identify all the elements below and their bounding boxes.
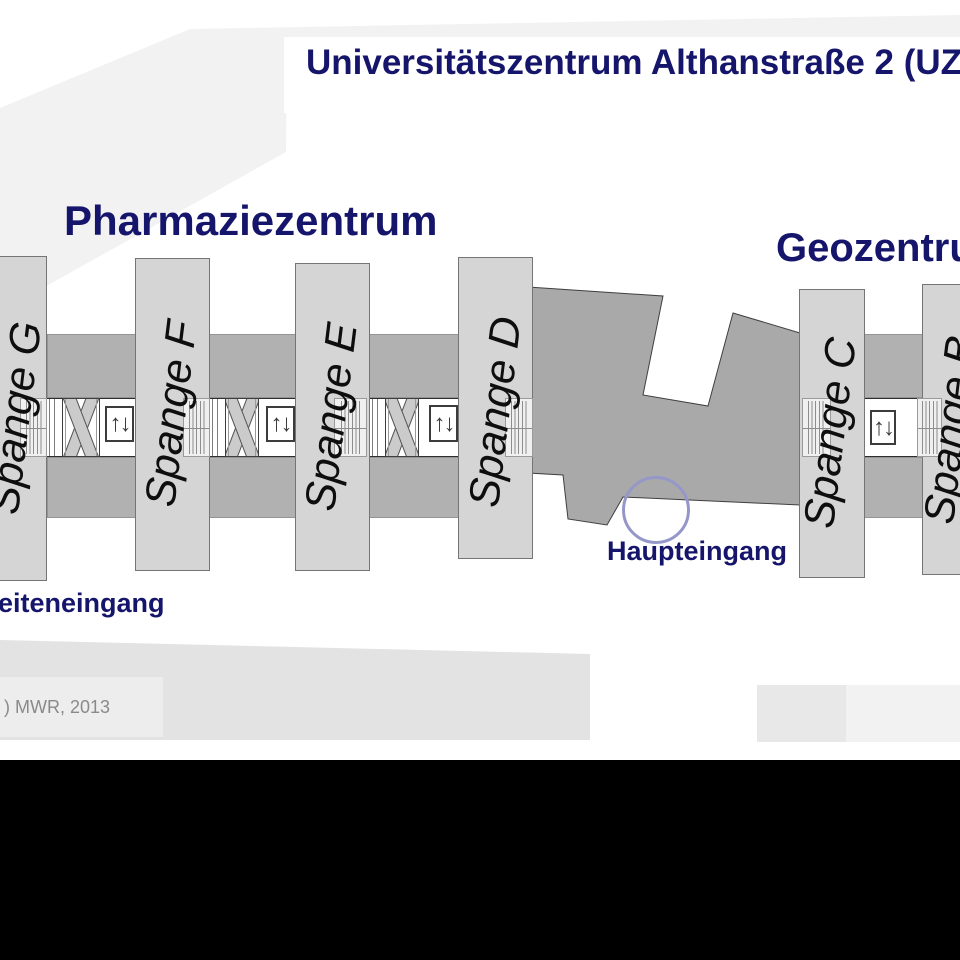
strip-lines [372, 399, 382, 456]
bottom-right-pad [846, 685, 960, 742]
corridor-band [209, 457, 297, 518]
elevator-icon: ↑↓ [429, 405, 458, 442]
elevator-arrows: ↑↓ [873, 416, 893, 440]
crossing-stairs-icon [225, 398, 259, 457]
corridor-band [47, 334, 137, 398]
corridor-band [863, 457, 924, 518]
elevator-icon: ↑↓ [105, 406, 134, 442]
page-title: Universitätszentrum Althanstraße 2 (UZA [306, 43, 960, 83]
elevator-icon: ↑↓ [266, 406, 295, 442]
area-label-pharmaziezentrum: Pharmaziezentrum [64, 197, 437, 245]
credit-box: ) MWR, 2013 [0, 677, 163, 737]
corridor-band [369, 334, 460, 398]
crossing-stairs-icon [62, 398, 100, 457]
main-entrance-circle [622, 476, 690, 544]
area-label-geozentrum: Geozentrum [776, 226, 960, 271]
elevator-icon: ↑↓ [870, 410, 896, 445]
elevator-arrows: ↑↓ [271, 412, 291, 436]
credit-text: ) MWR, 2013 [4, 697, 110, 718]
site-plan: ↑↓ ↑↓ ↑↓ ↑↓ Spange G Spange F Spange E S… [0, 0, 960, 960]
corridor-band [209, 334, 297, 398]
elevator-arrows: ↑↓ [110, 412, 130, 436]
bottom-black-bar [0, 760, 960, 960]
crossing-stairs-icon [385, 398, 419, 457]
elevator-arrows: ↑↓ [434, 412, 454, 436]
corridor-band [47, 457, 137, 518]
strip-lines [212, 399, 222, 456]
main-entrance-label: Haupteingang [607, 536, 787, 567]
strip-lines [49, 399, 59, 456]
corridor-band [369, 457, 460, 518]
bottom-right-pad [757, 685, 846, 742]
corridor-band [863, 334, 924, 398]
side-entrance-label: Seiteneingang [0, 588, 165, 619]
